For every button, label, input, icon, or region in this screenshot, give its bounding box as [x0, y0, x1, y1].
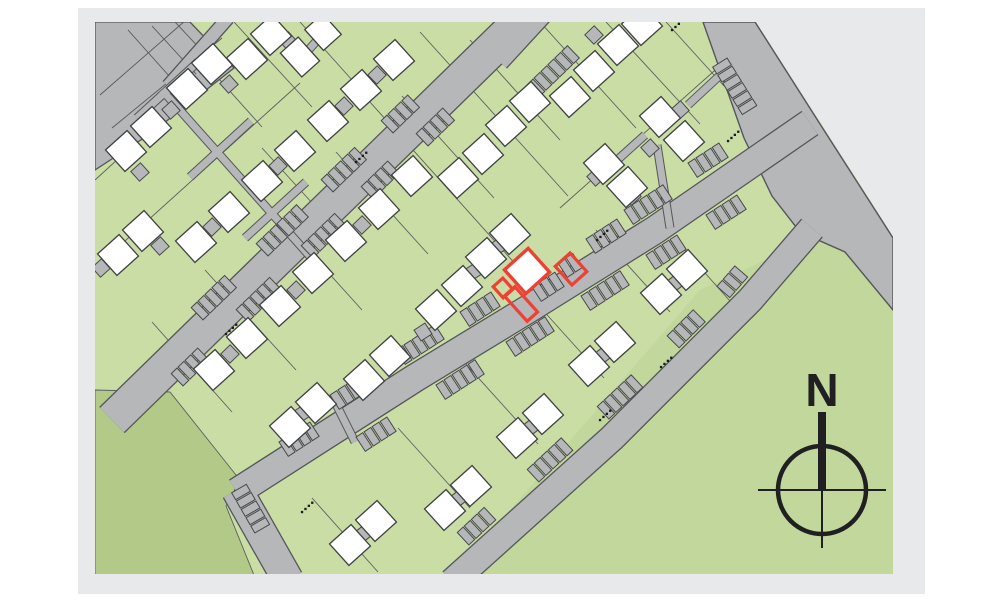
site-plan-map[interactable]: N: [0, 0, 1000, 600]
map-content: N: [92, 2, 893, 585]
compass-north-label: N: [805, 364, 838, 416]
site-plan-screenshot: N: [0, 0, 1000, 600]
